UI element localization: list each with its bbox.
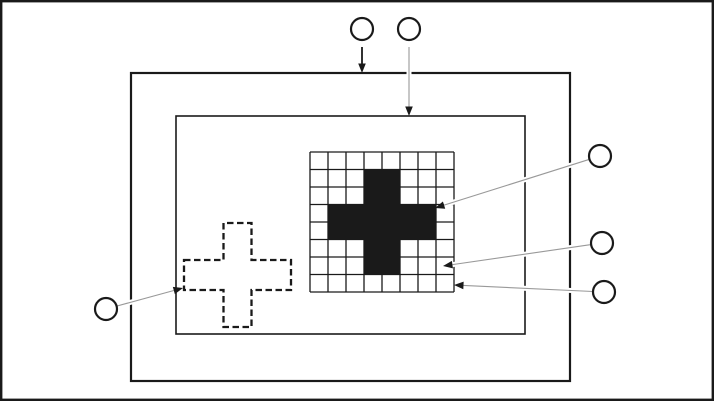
callout-circle-left (95, 298, 117, 320)
figure-canvas (0, 0, 714, 401)
callout-circle-top-left (351, 18, 373, 40)
figure-background (0, 0, 714, 401)
callout-circle-right-upper (589, 145, 611, 167)
figure-stage (0, 0, 714, 401)
callout-circle-right-lower (593, 281, 615, 303)
callout-circle-top-right (398, 18, 420, 40)
callout-circle-right-middle (591, 232, 613, 254)
